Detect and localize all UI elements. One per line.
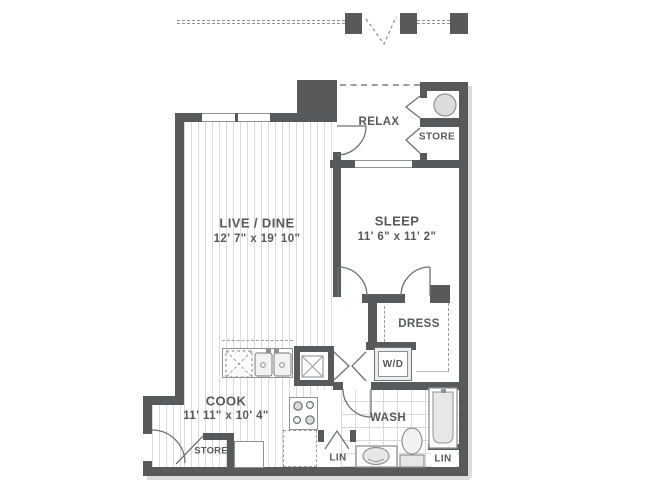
wall	[143, 396, 152, 434]
room-label-store-upper: STORE	[419, 132, 455, 143]
wall-shadow	[147, 476, 470, 480]
balcony-rail-left	[177, 20, 345, 24]
wd-label: W/D	[383, 359, 404, 370]
wall	[270, 113, 300, 122]
upper-cabinet-dashed	[222, 340, 293, 341]
closet-rod-dashed	[384, 306, 385, 342]
room-label-store-entry: STORE	[194, 446, 228, 457]
wall-shadow	[468, 86, 472, 478]
balcony-post	[450, 13, 468, 34]
window	[238, 113, 270, 122]
room-dims-live-dine: 12' 7" x 19' 10"	[214, 233, 301, 245]
wall-stub	[318, 430, 324, 442]
closet-rod-dashed	[448, 303, 449, 371]
wall-stub	[420, 91, 427, 98]
room-dims-sleep: 11' 6" x 11' 2"	[358, 231, 437, 243]
wall-stub	[350, 430, 356, 442]
wall-live-sleep	[333, 160, 341, 297]
window	[202, 113, 235, 122]
balcony-post	[400, 13, 417, 34]
balcony-open-edge	[340, 84, 420, 86]
wall-top-right	[420, 82, 468, 91]
relax-door-arc	[337, 126, 366, 155]
room-label-sleep: SLEEP	[375, 214, 420, 229]
wood-floor-entry	[152, 405, 184, 467]
refrigerator	[234, 441, 264, 468]
wall-divider	[420, 118, 459, 127]
wall-pillar	[430, 285, 450, 303]
wall-stub	[333, 152, 341, 162]
room-dims-cook: 11' 11" x 10' 4"	[183, 410, 268, 422]
room-label-relax: RELAX	[359, 116, 400, 128]
wall-sleep-top	[412, 160, 459, 168]
room-label-live-dine: LIVE / DINE	[219, 216, 294, 231]
room-label-dress: DRESS	[398, 318, 440, 330]
bifold-door-wd	[352, 352, 366, 381]
wall-right	[459, 82, 468, 476]
sleep-door-arc	[338, 267, 367, 296]
window-sleep	[355, 160, 412, 168]
stove	[289, 397, 318, 430]
wall-bottom	[143, 467, 468, 476]
room-label-lin-bath: LIN	[434, 454, 451, 465]
bifold-door-heater	[406, 96, 420, 118]
wall-bath-head	[371, 382, 459, 390]
base-cabinet-dashed	[283, 430, 317, 467]
wall-column	[297, 80, 337, 122]
washer-dryer-icon: W/D	[374, 347, 412, 381]
wall-store-right	[227, 433, 234, 467]
water-heater-icon	[434, 94, 456, 116]
floorplan-canvas: W/D	[0, 0, 650, 490]
wall-left	[175, 113, 184, 405]
balcony-post	[345, 13, 362, 34]
dress-door-arc	[401, 267, 430, 296]
room-label-wash: WASH	[370, 412, 406, 424]
bifold-door-nook	[334, 352, 349, 380]
balcony-rail-right	[417, 20, 450, 24]
kitchen-counter	[222, 348, 293, 378]
mechanical-closet	[294, 346, 334, 386]
wall-stub	[333, 382, 343, 390]
closet-shelf-line	[416, 371, 449, 372]
room-label-lin-hall: LIN	[329, 453, 346, 464]
gate-swing-dashed	[366, 17, 396, 44]
room-label-cook: COOK	[206, 394, 247, 409]
